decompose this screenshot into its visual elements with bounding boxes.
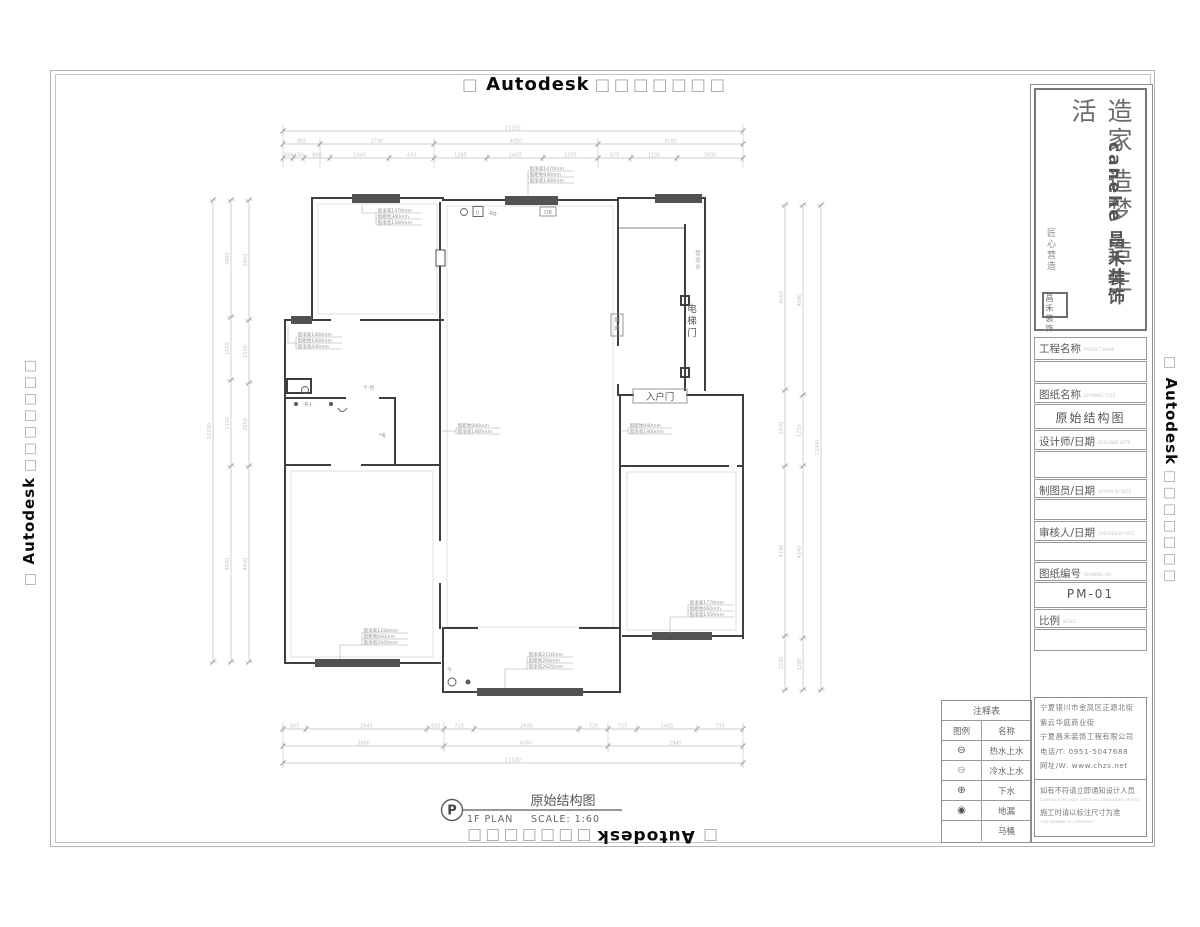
dim-chain: 2950155020504830 bbox=[243, 198, 253, 665]
svg-text:烟: 烟 bbox=[614, 316, 620, 324]
fixture-tag: -Rg- bbox=[488, 211, 498, 217]
dim-chain: 11500 bbox=[281, 758, 746, 768]
notice-en-1: CONTRACTORS MUST CHECK ALL DIMENSIONS ON… bbox=[1040, 798, 1142, 802]
field-label-row: 审核人/日期CHECKED BY DATE bbox=[1034, 521, 1147, 541]
window-bar bbox=[315, 659, 400, 667]
wall-left-outer bbox=[285, 320, 440, 663]
hot-water-icon: ⊖ bbox=[942, 741, 982, 761]
drain-dot bbox=[294, 402, 298, 406]
window-annotation: 窗净高1770mm窗距地660mm窗净宽1450mm bbox=[670, 599, 734, 633]
dim-extension-lines bbox=[283, 124, 743, 768]
window-bar bbox=[477, 688, 583, 696]
fixtures-group: O -Rg- -R-J- 个-甘 *冬 今 bbox=[294, 207, 498, 687]
company-website: 网址/W: www.chzs.net bbox=[1040, 761, 1142, 771]
drain-dot bbox=[329, 402, 333, 406]
balcony-dot bbox=[466, 680, 471, 685]
dim-chain: 4680175042401280 bbox=[797, 203, 807, 693]
autodesk-brand: Autodesk bbox=[481, 74, 595, 95]
logo-brand-cn: 昌禾装饰 bbox=[1104, 231, 1124, 307]
door-tag: D8 bbox=[544, 210, 552, 216]
window-annotation: 窗净高2150mm窗距地200mm窗净宽2625mm bbox=[505, 651, 573, 688]
logo-seal: 昌禾装饰 bbox=[1042, 292, 1068, 318]
svg-text:2945: 2945 bbox=[669, 741, 682, 747]
watermark-right: □Autodesk□□□□□□□ bbox=[1162, 356, 1180, 586]
company-notices: 如有不符请立即通知设计人员 CONTRACTORS MUST CHECK ALL… bbox=[1035, 780, 1146, 824]
svg-text:2790: 2790 bbox=[371, 139, 384, 145]
svg-text:1285: 1285 bbox=[454, 153, 467, 159]
field-value-row bbox=[1034, 361, 1147, 382]
svg-text:4060: 4060 bbox=[520, 741, 533, 747]
svg-text:1455: 1455 bbox=[661, 724, 674, 730]
watermark-boxes: □□□□□□□ bbox=[595, 75, 729, 94]
fixture-tag: 个-甘 bbox=[363, 384, 375, 391]
field-label-row: 图纸名称DRAWING TITLE bbox=[1034, 383, 1147, 403]
walls-group bbox=[285, 198, 743, 692]
svg-text:720: 720 bbox=[454, 724, 464, 730]
window-in-wall bbox=[436, 250, 445, 266]
field-label-row: 设计师/日期DESIGNER DATE bbox=[1034, 430, 1147, 450]
elevator-door-label: 电梯门 bbox=[687, 303, 697, 339]
svg-text:1550: 1550 bbox=[225, 342, 231, 355]
dim-chain: 4560187041901330 bbox=[779, 203, 789, 693]
inner-finish-lines bbox=[291, 204, 736, 657]
field-value-row bbox=[1034, 542, 1147, 561]
watermark-boxes: □□□□□□□ bbox=[1162, 470, 1178, 586]
company-phone: 电话/T: 0951-5047688 bbox=[1040, 747, 1142, 757]
svg-text:720: 720 bbox=[589, 724, 599, 730]
toilet-arc bbox=[338, 408, 347, 412]
svg-text:735: 735 bbox=[618, 724, 628, 730]
watermark-left: □Autodesk□□□□□□□ bbox=[20, 356, 38, 586]
notice-cn-2: 施工时请以标注尺寸为准 bbox=[1040, 808, 1142, 818]
toilet-icon bbox=[942, 821, 982, 841]
legend-row-name: 马桶 bbox=[982, 821, 1031, 841]
window-bar bbox=[655, 194, 702, 203]
watermark-boxes: □ bbox=[462, 75, 481, 94]
wall-top-left-room bbox=[285, 198, 443, 320]
legend-header-symbol: 图例 bbox=[942, 721, 982, 741]
svg-text:735: 735 bbox=[715, 724, 725, 730]
floor-drain-icon: ◉ bbox=[942, 801, 982, 821]
watermark-boxes: □ bbox=[1162, 356, 1178, 373]
plan-scale-label: SCALE: 1:60 bbox=[531, 814, 600, 825]
company-address-2: 紫云华庭商业街 bbox=[1040, 718, 1142, 728]
autodesk-brand: Autodesk bbox=[1162, 373, 1180, 471]
logo-brand-en: canehe bbox=[1104, 142, 1124, 223]
wall-bath-partitions bbox=[285, 398, 440, 465]
window-annotation: 窗距地940mm窗净宽1400mm bbox=[622, 422, 672, 435]
svg-text:1400: 1400 bbox=[509, 153, 522, 159]
svg-text:4680: 4680 bbox=[797, 294, 803, 307]
window-annotation: 窗距地940mm窗净宽1460mm bbox=[442, 422, 500, 435]
svg-text:井: 井 bbox=[695, 263, 701, 271]
sink-counter bbox=[287, 379, 311, 393]
fixture-tag: -R-J- bbox=[303, 402, 313, 408]
svg-text:2880: 2880 bbox=[225, 252, 231, 265]
legend-header-name: 名称 bbox=[982, 721, 1031, 741]
dim-chain: 905279040503180 bbox=[281, 139, 746, 149]
dim-chain: 11330 bbox=[207, 198, 217, 665]
svg-text:1550: 1550 bbox=[243, 345, 249, 358]
svg-text:2600: 2600 bbox=[520, 724, 533, 730]
wall-right-section bbox=[620, 395, 743, 690]
drawing-sheet: □Autodesk□□□□□□□ □Autodesk□□□□□□□ □Autod… bbox=[0, 0, 1200, 927]
svg-text:1280: 1280 bbox=[797, 658, 803, 671]
notice-cn-1: 如有不符请立即通知设计人员 bbox=[1040, 786, 1142, 796]
window-annotations: 窗净高1470mm窗距地340mm窗净宽1440mm窗净高1470mm窗距地94… bbox=[288, 165, 734, 688]
logo-brand: canehe 昌禾装饰 bbox=[1102, 142, 1127, 322]
svg-text:3180: 3180 bbox=[664, 139, 677, 145]
svg-text:管: 管 bbox=[695, 249, 701, 257]
window-annotation: 窗净高1470mm窗距地940mm窗净宽1400mm bbox=[528, 165, 574, 197]
svg-text:11255: 11255 bbox=[505, 126, 521, 132]
svg-text:1830: 1830 bbox=[704, 153, 717, 159]
svg-text:4190: 4190 bbox=[779, 545, 785, 558]
svg-text:1870: 1870 bbox=[779, 422, 785, 435]
legend-row-name: 下水 bbox=[982, 781, 1031, 801]
cold-water-icon: ⊖ bbox=[942, 761, 982, 781]
field-value-row bbox=[1034, 499, 1147, 520]
svg-text:1295: 1295 bbox=[564, 153, 577, 159]
svg-text:4240: 4240 bbox=[797, 546, 803, 559]
dim-chain: 240430690144043012851400129582511501830 bbox=[281, 153, 746, 163]
legend-row-name: 地漏 bbox=[982, 801, 1031, 821]
dim-chain: 2880155021204830 bbox=[225, 198, 235, 665]
fixture-tag: 今 bbox=[447, 666, 452, 673]
svg-text:2945: 2945 bbox=[360, 724, 373, 730]
window-annotation: 窗净高1470mm窗距地340mm窗净宽1440mm bbox=[362, 205, 422, 226]
svg-text:4050: 4050 bbox=[510, 139, 523, 145]
svg-text:4830: 4830 bbox=[243, 558, 249, 571]
legend-row-name: 热水上水 bbox=[982, 741, 1031, 761]
svg-text:690: 690 bbox=[312, 153, 322, 159]
window-bar bbox=[652, 632, 712, 640]
svg-text:11940: 11940 bbox=[815, 440, 821, 456]
plan-title-group: P 原始结构图 1F PLAN SCALE: 1:60 bbox=[442, 794, 623, 825]
windows-group bbox=[291, 194, 712, 696]
svg-text:1750: 1750 bbox=[797, 424, 803, 437]
field-value-row bbox=[1034, 629, 1147, 651]
legend-table: 注释表 图例 名称 ⊖ 热水上水 ⊖ 冷水上水 ⊕ 下水 ◉ 地漏 马桶 bbox=[941, 700, 1032, 843]
svg-text:电: 电 bbox=[687, 303, 697, 315]
svg-text:1150: 1150 bbox=[648, 153, 661, 159]
window-bar bbox=[291, 316, 312, 324]
floor-plan-svg: O -Rg- -R-J- 个-甘 *冬 今 入户门 电梯门 烟道 管道井 D8 … bbox=[200, 115, 845, 830]
balcony-circle bbox=[448, 678, 456, 686]
field-value-row bbox=[1034, 451, 1147, 478]
svg-text:11500: 11500 bbox=[505, 758, 521, 764]
svg-text:2950: 2950 bbox=[243, 254, 249, 267]
window-annotation: 窗净高1400mm窗距地1000mm窗净宽430mm bbox=[288, 325, 342, 350]
svg-text:430: 430 bbox=[294, 153, 304, 159]
dimension-chains: 1125590527904050318024043069014404301285… bbox=[207, 126, 825, 768]
company-info-box: 宁夏银川市金凤区正源北街 紫云华庭商业街 宁夏昌禾装饰工程有限公司 电话/T: … bbox=[1034, 697, 1147, 837]
svg-text:道: 道 bbox=[695, 256, 701, 264]
shaft-label: 管道井 bbox=[695, 249, 701, 271]
watermark-boxes: □□□□□□□ bbox=[22, 356, 38, 472]
autodesk-brand: Autodesk bbox=[20, 472, 38, 570]
plan-floor-label: 1F PLAN bbox=[467, 814, 513, 825]
entry-door-label: 入户门 bbox=[646, 391, 675, 403]
window-annotation: 窗净高1220mm窗距地660mm窗净宽2045mm bbox=[340, 627, 408, 659]
svg-text:2120: 2120 bbox=[225, 417, 231, 430]
dim-chain: 11255 bbox=[281, 126, 746, 136]
svg-text:4830: 4830 bbox=[225, 558, 231, 571]
field-label-row: 比例SCALE: bbox=[1034, 609, 1147, 628]
svg-text:2050: 2050 bbox=[243, 418, 249, 431]
svg-text:1330: 1330 bbox=[779, 657, 785, 670]
legend-title: 注释表 bbox=[942, 701, 1031, 721]
fixture-tag: O bbox=[476, 211, 480, 217]
fixture-tag: *冬 bbox=[379, 432, 386, 439]
watermark-boxes: □ bbox=[22, 569, 38, 586]
window-bar bbox=[352, 194, 400, 203]
svg-text:240: 240 bbox=[283, 153, 293, 159]
company-address-1: 宁夏银川市金凤区正源北街 bbox=[1040, 703, 1142, 713]
field-label-row: 制图员/日期DRAWN BY DATE bbox=[1034, 479, 1147, 498]
svg-text:门: 门 bbox=[687, 327, 697, 339]
svg-text:1440: 1440 bbox=[353, 153, 366, 159]
svg-text:3960: 3960 bbox=[357, 741, 370, 747]
company-contact: 宁夏银川市金凤区正源北街 紫云华庭商业街 宁夏昌禾装饰工程有限公司 电话/T: … bbox=[1035, 698, 1146, 780]
dim-chain: 396040602945 bbox=[281, 741, 746, 751]
field-label-row: 图纸编号DRAWING NO. bbox=[1034, 562, 1147, 581]
svg-text:905: 905 bbox=[297, 139, 307, 145]
notice-en-2: THIS DRAWING IS COPYRIGHT bbox=[1040, 820, 1142, 824]
svg-text:420: 420 bbox=[431, 724, 441, 730]
svg-text:梯: 梯 bbox=[687, 315, 697, 327]
svg-text:道: 道 bbox=[614, 324, 620, 332]
legend-row-name: 冷水上水 bbox=[982, 761, 1031, 781]
logo-box: 造家 造梦 造生活 canehe 昌禾装饰 匠心营造 昌禾装饰 bbox=[1034, 88, 1147, 331]
svg-text:565: 565 bbox=[290, 724, 300, 730]
dim-chain: 565294542072026007207351455735 bbox=[281, 724, 746, 734]
logo-signature: 匠心营造 bbox=[1044, 228, 1057, 290]
svg-text:4560: 4560 bbox=[779, 291, 785, 304]
svg-text:11330: 11330 bbox=[207, 423, 213, 439]
drain-icon: ⊕ bbox=[942, 781, 982, 801]
field-label-row: 工程名称PROJECT NAME bbox=[1034, 337, 1147, 360]
title-block-fields: 工程名称PROJECT NAME图纸名称DRAWING TITLE原始结构图设计… bbox=[1034, 337, 1147, 652]
plumbing-symbol bbox=[461, 209, 468, 216]
plan-labels: 入户门 电梯门 烟道 管道井 D8 bbox=[540, 207, 701, 403]
watermark-top: □Autodesk□□□□□□□ bbox=[462, 74, 729, 95]
field-value-row: 原始结构图 bbox=[1034, 404, 1147, 429]
field-value-row: PM-01 bbox=[1034, 582, 1147, 608]
svg-text:825: 825 bbox=[610, 153, 620, 159]
dim-chain: 11940 bbox=[815, 203, 825, 693]
company-name: 宁夏昌禾装饰工程有限公司 bbox=[1040, 732, 1142, 742]
plan-tag: P bbox=[447, 804, 457, 819]
svg-text:430: 430 bbox=[407, 153, 417, 159]
window-bar bbox=[505, 196, 558, 205]
plan-title-cn: 原始结构图 bbox=[530, 794, 595, 809]
